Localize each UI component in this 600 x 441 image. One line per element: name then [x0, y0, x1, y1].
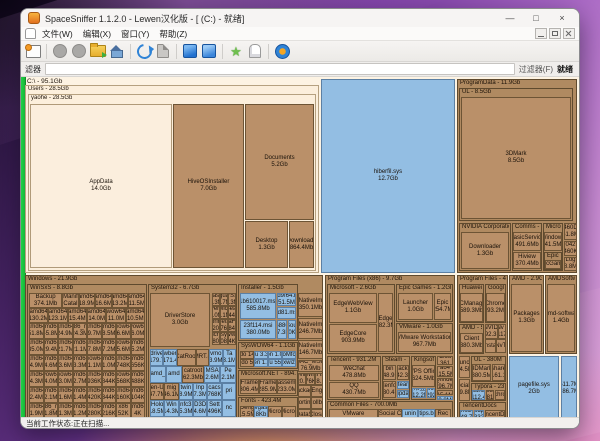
treemap-tile[interactable]: Ta3.1M: [223, 349, 236, 366]
treemap-box-header: AMD - 2.9Gb: [512, 276, 542, 282]
treemap-tile[interactable]: 460D51.8M: [564, 223, 577, 240]
treemap-tile[interactable]: Stru 556K: [268, 359, 282, 367]
treemap-tile[interactable]: Social C: [378, 409, 402, 418]
treemap-tile[interactable]: amd641.3M: [58, 403, 73, 418]
treemap-tile[interactable]: x8652K: [116, 403, 131, 418]
treemap-tile[interactable]: Holo18.5M: [150, 400, 164, 417]
menubar: 文件(W) 编辑(X) 窗口(Y) 帮助(Z): [21, 27, 579, 41]
treemap-tile[interactable]: Task3.3M: [212, 293, 220, 306]
treemap-tile[interactable]: 23f114.msi380.0Mb: [240, 320, 276, 339]
treemap-tile[interactable]: amd644.6M: [44, 355, 59, 371]
toolbar-separator: [268, 44, 269, 59]
treemap-box-header: Windows - 21.9Gb: [28, 276, 77, 282]
menu-window[interactable]: 窗口(Y): [121, 28, 149, 40]
treemap-tile[interactable]: amd641.4M: [73, 387, 88, 403]
treemap-tile[interactable]: catroot62.3Mb: [182, 366, 204, 383]
treemap-tile[interactable]: 3DMark8.5Gb: [461, 97, 571, 219]
treemap-box-header: Microsoft - 2.6Gb: [330, 285, 376, 291]
treemap-tile[interactable]: NvT: [496, 339, 507, 353]
treemap-tile[interactable]: Micros: [282, 406, 296, 418]
treemap-box-header: System32 - 6.7Gb: [151, 285, 199, 291]
treemap-tile[interactable]: wpn 1.0M: [268, 351, 282, 359]
treemap-tile[interactable]: CatRoot: [177, 349, 196, 366]
treemap-tile[interactable]: amd-softwar1.4Gb: [547, 284, 575, 352]
treemap-tile[interactable]: NativeIm350.1Mb: [298, 293, 323, 317]
treemap-tile[interactable]: Instal: [485, 339, 496, 353]
close-button[interactable]: ×: [549, 10, 575, 26]
treemap-tile[interactable]: amd6411.5M: [128, 293, 145, 308]
treemap-tile[interactable]: Windo 14.2M: [240, 351, 254, 359]
treemap-tile[interactable]: Qfinder196.7M: [437, 378, 453, 389]
treemap-tile[interactable]: Pe2.1M: [220, 366, 236, 383]
treemap-tile[interactable]: share161.1: [492, 364, 505, 381]
treemap-tile[interactable]: 688627.3M: [277, 320, 287, 339]
treemap-tile[interactable]: Hiview370.4Mb: [513, 252, 541, 269]
treemap-tile[interactable]: amd6451.8M: [29, 323, 44, 339]
treemap-tile[interactable]: Soui20Kb: [288, 320, 296, 339]
treemap-tile[interactable]: amd6416.6M: [95, 293, 112, 308]
pause-button[interactable]: [71, 43, 87, 59]
menu-help[interactable]: 帮助(Z): [159, 28, 187, 40]
treemap-tile[interactable]: nfc35.3M: [179, 400, 193, 417]
treemap-tile[interactable]: micr48.7: [460, 410, 473, 418]
treemap-tile[interactable]: Micr1.1M: [220, 306, 228, 319]
treemap-tile[interactable]: Inp7.3M: [193, 383, 207, 400]
treemap-tile[interactable]: NvCl15.1M: [437, 390, 453, 395]
treemap-tile[interactable]: amd643.3M: [73, 355, 88, 371]
treemap-box-header: Microsoft -: [546, 224, 561, 230]
treemap-tile[interactable]: 通帮登.4112.2M: [412, 388, 426, 398]
titlebar[interactable]: SpaceSniffer 1.1.2.0 - Lewen汉化版 - [ (C:)…: [21, 9, 579, 27]
statusbar: 当前工作状态:正在扫描...: [21, 418, 579, 428]
treemap-tile[interactable]: PCManager589.3Mb: [460, 293, 483, 322]
treemap-tile[interactable]: wow646.6M: [116, 323, 131, 339]
treemap-tile[interactable]: netn276K: [220, 319, 228, 332]
treemap-tile[interactable]: mfen 1.8M: [254, 359, 268, 367]
treemap-tile[interactable]: atiu 3.3M: [254, 351, 268, 359]
treemap-tile[interactable]: Frame285.9M: [259, 379, 278, 394]
treemap-tile[interactable]: Downloader1.3Gb: [461, 232, 509, 269]
menu-edit[interactable]: 编辑(X): [83, 28, 111, 40]
treemap-box-header: Epic Games - 1.2Gb: [399, 285, 451, 291]
treemap-tile[interactable]: c6d9f64.ms151.5Mb: [277, 293, 296, 306]
treemap-canvas-inner: C:\ - 95.1Gb Users - 28.5Gbyaohe - 28.5G…: [25, 77, 577, 418]
treemap-tile[interactable]: en-U47.7M: [150, 383, 164, 400]
treemap-tile[interactable]: Windo 5.4M: [240, 359, 254, 367]
treemap-tile[interactable]: chro: [495, 390, 505, 400]
stop-button[interactable]: [52, 43, 68, 59]
treemap-tile[interactable]: Package: [298, 385, 311, 397]
treemap-tile[interactable]: pri: [222, 383, 236, 400]
treemap-tile[interactable]: packa242.3M: [397, 365, 409, 380]
minimize-button[interactable]: —: [497, 10, 523, 26]
treemap-tile[interactable]: Eng: [311, 385, 324, 397]
treemap-tile[interactable]: Launcher1.0Gb: [398, 293, 433, 320]
desktop: SpaceSniffer 1.1.2.0 - Lewen汉化版 - [ (C:)…: [0, 0, 600, 441]
treemap-tile[interactable]: TencentDoc: [485, 410, 505, 418]
treemap-tile[interactable]: wow646.0M: [131, 323, 146, 339]
toolbar-separator: [176, 44, 177, 59]
treemap-tile[interactable]: unin: [402, 409, 418, 418]
treemap-tile[interactable]: Chrome593.2Mb: [486, 293, 505, 322]
toolbar: ★: [21, 41, 579, 62]
treemap-tile[interactable]: wow64568K: [116, 371, 131, 387]
toolbar-separator: [222, 44, 223, 59]
treemap-box-header: UL - 8.5Gb: [462, 89, 491, 95]
treemap-tile[interactable]: Win76K: [306, 373, 314, 385]
treemap-tile[interactable]: amd647.8M: [87, 339, 102, 355]
maximize-button[interactable]: □: [523, 10, 549, 26]
treemap-tile[interactable]: ManifCatal: [62, 293, 79, 308]
treemap-tile[interactable]: amd642.4M: [29, 387, 44, 403]
treemap-tile[interactable]: assem233.0M: [277, 379, 296, 394]
treemap-tile[interactable]: Micros: [268, 406, 282, 418]
treemap-box-header: Comms - 986.2M: [515, 224, 540, 230]
spacesniffer-window: SpaceSniffer 1.1.2.0 - Lewen汉化版 - [ (C:)…: [20, 8, 580, 429]
treemap-tile[interactable]: wow641.1M: [87, 355, 102, 371]
treemap-tile[interactable]: amd6424.9M: [58, 323, 73, 339]
mdi-close-button[interactable]: [563, 28, 575, 39]
treemap-tile[interactable]: Sett496K: [207, 400, 221, 417]
treemap-tile[interactable]: tenfo130.4M: [383, 381, 396, 398]
treemap-tile[interactable]: qua1.7M: [220, 293, 228, 306]
treemap-tile[interactable]: amd: [166, 366, 182, 383]
detail-more-button[interactable]: [201, 43, 217, 59]
treemap-tile[interactable]: hiberfil.sys12.7Gb: [321, 79, 455, 273]
treemap-tile[interactable]: wow645.6M: [116, 339, 131, 355]
treemap-tile[interactable]: steam: [397, 381, 409, 389]
treemap-tile[interactable]: wow6411.0M: [106, 308, 125, 323]
treemap-tile[interactable]: amd_: [150, 366, 166, 383]
ready-status: 就绪: [557, 64, 573, 75]
mdi-child-icon: [25, 28, 36, 39]
treemap-box-header: Google - 593M: [488, 285, 504, 291]
treemap-tile[interactable]: Deng15.5M: [240, 406, 254, 418]
treemap-tile[interactable]: Documents5.2Gb: [245, 104, 314, 220]
treemap-tile[interactable]: xwiz: [282, 359, 296, 367]
treemap-tile[interactable]: Frame306.4M: [240, 379, 259, 394]
treemap-box-header: Huawei - 692M: [462, 285, 482, 291]
treemap-tile[interactable]: amd64130.2M: [29, 308, 48, 323]
treemap-tile[interactable]: amd64280K: [87, 403, 102, 418]
treemap-tile[interactable]: amd64488K: [131, 371, 146, 387]
treemap-tile[interactable]: asyn108K: [220, 332, 228, 345]
export-button[interactable]: [90, 43, 106, 59]
treemap-tile[interactable]: WeChat478.8Mb: [329, 365, 379, 381]
treemap-tile[interactable]: amd643.6M: [58, 355, 73, 371]
treemap-tile[interactable]: Social C89.8M: [459, 379, 470, 401]
treemap-tile[interactable]: drive179.7: [150, 349, 163, 366]
treemap-box-header: NVIDIA Corporation -: [462, 224, 509, 230]
treemap-tile[interactable]: Log8.8M: [564, 257, 577, 271]
star-filter-button[interactable]: ★: [228, 43, 244, 59]
treemap-tile[interactable]: GAC_MSIL76.9Mb: [298, 360, 323, 372]
treemap-tile[interactable]: BasicService491.6Mb: [513, 232, 541, 251]
filter-label: 滤器: [25, 64, 41, 75]
root-drive-label: C:\ - 95.1Gb: [27, 78, 62, 85]
treemap-tile[interactable]: Wwa4K: [228, 332, 236, 345]
treemap-tile[interactable]: amd64936K: [87, 371, 102, 387]
treemap-box-header: Program Files (x86) - 9.7Gb: [328, 276, 402, 282]
treemap-box-header: Tencent - 931.2M: [330, 357, 376, 363]
treemap-box-header: Kingsoft - 6: [414, 357, 434, 363]
menu-file[interactable]: 文件(W): [42, 28, 73, 40]
window-title: SpaceSniffer 1.1.2.0 - Lewen汉化版 - [ (C:)…: [45, 12, 497, 25]
treemap-tile[interactable]: Desktop1.3Gb: [245, 221, 288, 268]
toolbar-separator: [46, 44, 47, 59]
home-button[interactable]: [109, 43, 125, 59]
treemap-tile[interactable]: Packages1.3Gb: [511, 284, 542, 352]
refresh-button[interactable]: [136, 43, 152, 59]
filter-link[interactable]: 过滤器(F): [519, 64, 553, 75]
treemap-box-header: VMware - 1.0Gb: [399, 324, 443, 330]
new-scan-button[interactable]: [25, 43, 41, 59]
treemap-tile[interactable]: amd64160K: [116, 387, 131, 403]
treemap-tile[interactable]: NvT117: [498, 324, 506, 339]
treemap-tile[interactable]: 3DMark380.5M: [472, 364, 491, 381]
treemap-tile[interactable]: amd644.3M: [29, 371, 44, 387]
treemap-tile[interactable]: daFA184K: [228, 319, 236, 332]
treemap-tile[interactable]: updat: [397, 390, 409, 398]
treemap-tile[interactable]: amd6435.0M: [29, 339, 44, 355]
treemap-box-header: Users - 28.5Gb: [28, 86, 69, 92]
treemap-tile[interactable]: twin8.9M: [179, 383, 193, 400]
treemap-tile[interactable]: EpicGames: [545, 260, 561, 269]
treemap-tile[interactable]: amd648.5M: [102, 323, 117, 339]
treemap-tile[interactable]: MSA2.6M: [204, 366, 220, 383]
treemap-tile[interactable]: Edge582.3M: [378, 293, 393, 352]
toolbar-separator: [130, 44, 131, 59]
app-icon: [28, 12, 40, 24]
treemap-box-header: WinSxS - 8.8Gb: [30, 285, 73, 291]
treemap-tile[interactable]: Closa: [311, 409, 324, 418]
treemap-tile[interactable]: Clou361: [437, 356, 453, 365]
treemap-box-header: ProgramData - 11.9Gb: [460, 80, 520, 86]
treemap-tile[interactable]: amd644.9M: [29, 355, 44, 371]
treemap-tile[interactable]: Windows441.5Mb: [544, 232, 562, 251]
treemap-tile[interactable]: tips.b: [418, 409, 434, 418]
treemap-tile[interactable]: amd641.0M: [102, 355, 117, 371]
treemap-box-header: Program Files - 4.4Gb: [460, 276, 506, 282]
treemap-tile[interactable]: unin292: [427, 388, 435, 398]
treemap-tile[interactable]: MRT.e: [196, 349, 209, 366]
treemap-tile[interactable]: Launche94.5M: [459, 356, 470, 378]
treemap-tile[interactable]: NVIDI192.3M: [485, 324, 498, 339]
status-text: 当前工作状态:正在扫描...: [26, 418, 109, 429]
treemap-tile[interactable]: amd64104K: [131, 387, 146, 403]
filter-input[interactable]: [45, 63, 515, 75]
treemap-tile[interactable]: amd6421.7M: [58, 339, 73, 355]
treemap-tile[interactable]: Backup374.1Mb: [29, 293, 62, 308]
treemap-tile[interactable]: 042460K: [564, 241, 577, 256]
treemap-tile[interactable]: wow643.0M: [58, 371, 73, 387]
treemap-box-header: TencentDocs: [462, 403, 497, 409]
treemap-tile[interactable]: amd645.2M: [131, 339, 146, 355]
treemap-tile[interactable]: AppData14.0Gb: [30, 104, 172, 268]
treemap-tile[interactable]: amd641.9M: [29, 403, 44, 418]
treemap-tile[interactable]: WEP9.8M: [437, 396, 453, 400]
treemap-tile[interactable]: pagefile.sys2Gb: [509, 356, 559, 418]
treemap-tile[interactable]: VMware: [329, 409, 378, 418]
treemap-tile[interactable]: amd64123.1M: [48, 308, 67, 323]
treemap-tile[interactable]: x86_m1.8M: [44, 403, 59, 418]
treemap-tile[interactable]: Epic254.7M: [434, 293, 451, 320]
treemap-tile[interactable]: amd6413.2M: [112, 293, 129, 308]
treemap-tile[interactable]: DataS: [298, 409, 311, 418]
treemap-tile[interactable]: Perc2.0M: [212, 306, 220, 319]
treemap-tile[interactable]: amd64344K: [102, 387, 117, 403]
treemap-tile[interactable]: amd649.7M: [87, 323, 102, 339]
treemap-box-header: Installer - 1.5Gb: [241, 285, 284, 291]
treemap-tile[interactable]: amd647.2M: [102, 339, 117, 355]
treemap-tile[interactable]: amd64420K: [87, 387, 102, 403]
treemap-tile[interactable]: EdgeCore903.9Mb: [329, 324, 377, 352]
treemap-tile[interactable]: Win20.8: [298, 373, 306, 385]
treemap-tile[interactable]: amd64748K: [116, 355, 131, 371]
treemap-tile[interactable]: amd64216K: [102, 403, 117, 418]
treemap-tile[interactable]: mig46.1M: [164, 383, 178, 400]
treemap-tile[interactable]: Sur81: [486, 390, 494, 400]
treemap-tile[interactable]: amd6410.5M: [126, 308, 145, 323]
treemap-tile[interactable]: WPS Office624.5Mb: [412, 365, 435, 387]
treemap-box-header: AMDSoftwar: [548, 276, 575, 282]
treemap-box-header: Microsoft.NET - 894.0M: [241, 371, 296, 377]
treemap-box-header: Fonts - 423.4M: [241, 398, 281, 404]
treemap-box-header: UL - 380M: [474, 357, 502, 363]
treemap-tile[interactable]: bd81.msi: [277, 307, 296, 319]
treemap-tile[interactable]: amd6414.0M: [87, 308, 106, 323]
treemap-tile[interactable]: wow644.0M: [44, 371, 59, 387]
treemap-box-header: Epic - 261.5M: [547, 253, 560, 259]
treemap-tile[interactable]: vgas8Kb: [254, 406, 268, 418]
treemap-tile[interactable]: D3D4.6M: [193, 400, 207, 417]
treemap-tile[interactable]: amd6421.1M: [73, 339, 88, 355]
treemap-box-header: yaohe - 28.5Gb: [31, 95, 72, 101]
treemap-tile[interactable]: Rec: [435, 409, 451, 418]
treemap-tile[interactable]: pand112.4: [472, 390, 485, 400]
treemap-tile[interactable]: amd642.7M: [73, 371, 88, 387]
mdi-window-controls: [535, 28, 575, 39]
treemap-tile[interactable]: amd64844K: [102, 371, 117, 387]
treemap-tile[interactable]: Rollba: [311, 397, 324, 409]
treemap-tile[interactable]: amd642.1M: [44, 387, 59, 403]
treemap-tile[interactable]: amd641.2M: [73, 403, 88, 418]
treemap-tile[interactable]: Win14.3M: [164, 400, 178, 417]
treemap-tile[interactable]: EdgeWebView1.1Gb: [329, 293, 377, 323]
treemap-box-header: Common Files - 700.0Mb: [330, 402, 397, 408]
treemap-tile[interactable]: amd64656K: [131, 355, 146, 371]
treemap-tile[interactable]: bdp332: [474, 410, 484, 418]
treemap-tile[interactable]: HiveOSInstaller7.0Gb: [173, 104, 244, 268]
treemap-tile[interactable]: x86_m24.3M: [73, 323, 88, 339]
treemap-box-header: Steam - 913.4M: [385, 357, 408, 363]
treemap-tile[interactable]: bin248.9M: [383, 365, 396, 380]
treemap-tile[interactable]: Downloads864.4Mb: [289, 221, 314, 268]
filter-bar: 滤器 过滤器(F) 就绪: [21, 62, 579, 77]
treemap-tile[interactable]: Client380.3Mb: [460, 333, 483, 353]
treemap-tile[interactable]: Sear944K: [228, 306, 236, 319]
treemap-tile[interactable]: DriverStore3.0Gb: [150, 293, 210, 347]
treemap-tile[interactable]: prin620K: [212, 319, 220, 332]
report-button[interactable]: [155, 43, 171, 59]
treemap-tile[interactable]: VSS1.3M: [228, 293, 236, 306]
mdi-minimize-button[interactable]: [535, 28, 547, 39]
treemap-tile[interactable]: NativeIm146.7Mb: [298, 340, 323, 359]
treemap-tile[interactable]: 1b610017.msi585.8Mb: [240, 293, 276, 319]
treemap-tile[interactable]: amd641.6M: [58, 387, 73, 403]
treemap-tile[interactable]: cacs768K: [207, 383, 221, 400]
treemap-tile[interactable]: amd6445.8M: [44, 323, 59, 339]
treemap-tile[interactable]: vmo3.9M: [209, 349, 222, 366]
treemap-canvas[interactable]: C:\ - 95.1Gb Users - 28.5Gbyaohe - 28.5G…: [21, 77, 579, 418]
treemap-tile[interactable]: amd6429.4M: [44, 339, 59, 355]
settings-button[interactable]: [274, 43, 290, 59]
treemap-tile[interactable]: Sorting: [298, 397, 311, 409]
treemap-tile[interactable]: oMfc: [282, 351, 296, 359]
free-space-button[interactable]: [247, 43, 263, 59]
treemap-tile[interactable]: nc: [222, 400, 236, 417]
treemap-tile[interactable]: amd6415.4M: [68, 308, 87, 323]
detail-less-button[interactable]: [182, 43, 198, 59]
treemap-box-header: AMD - 544.5M: [462, 325, 482, 331]
treemap-tile[interactable]: 511.7M786.7M: [561, 356, 577, 418]
treemap-tile[interactable]: amd644K: [131, 403, 146, 418]
treemap-box-header: SysWOW64 - 1.1Gb: [241, 343, 295, 349]
treemap-tile[interactable]: VMware Workstation967.7Mb: [398, 332, 451, 352]
mdi-restore-button[interactable]: [549, 28, 561, 39]
treemap-tile[interactable]: ncry380K: [212, 332, 220, 345]
treemap-tile[interactable]: wber171.4: [163, 349, 176, 366]
treemap-tile[interactable]: CHS88.1: [315, 373, 323, 385]
treemap-tile[interactable]: a64215.5M: [437, 366, 453, 377]
treemap-tile[interactable]: QQ430.7Mb: [329, 382, 379, 398]
treemap-tile[interactable]: NativeIm246.7Mb: [298, 318, 323, 339]
treemap-tile[interactable]: amd6418.9M: [79, 293, 96, 308]
